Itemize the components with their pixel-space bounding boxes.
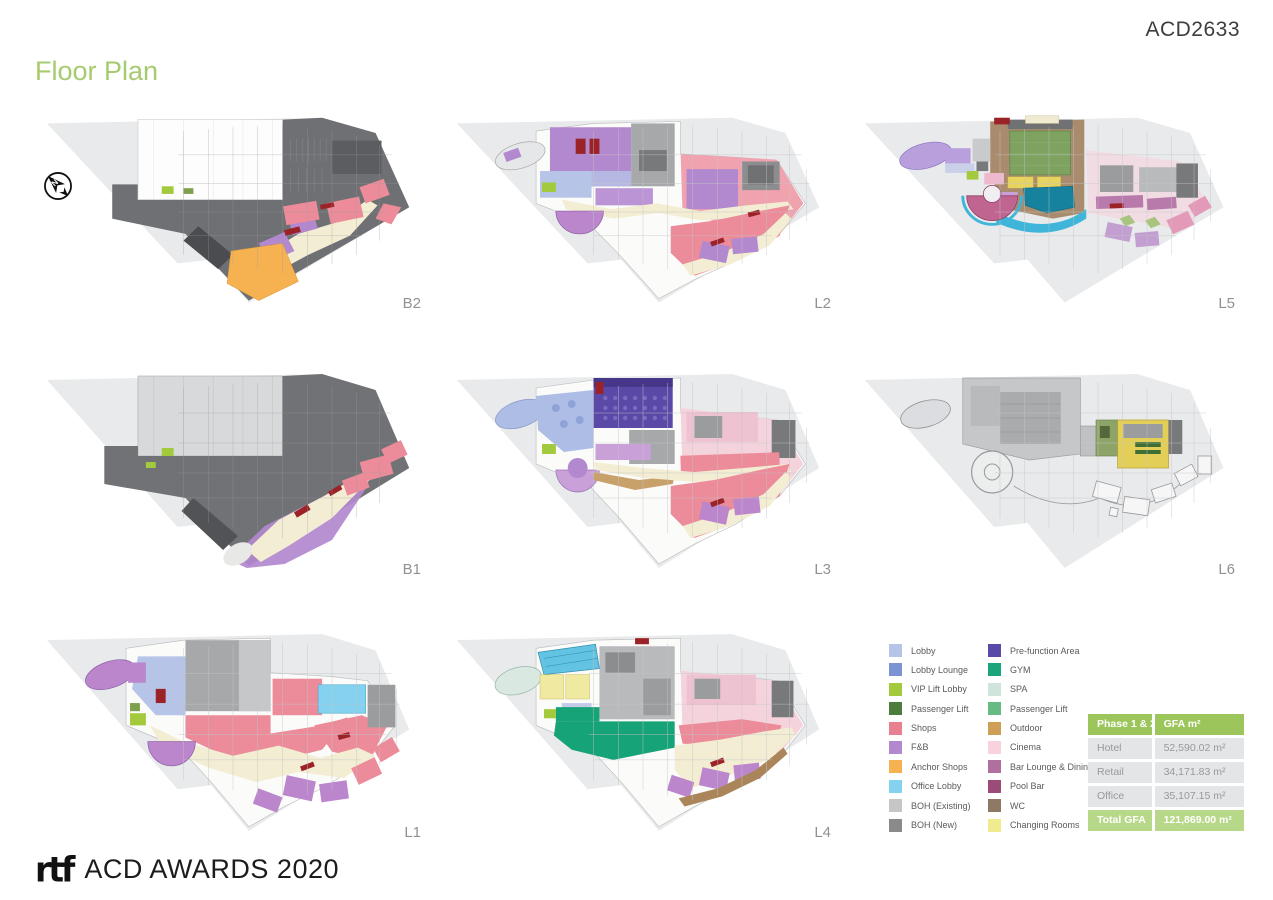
legend-label: Shops [911,723,937,733]
floor-label-l1: L1 [404,824,421,841]
legend-item: Lobby [889,644,988,657]
floor-panel-b1: B1 [35,368,431,578]
gfa-cell: 34,171.83 m² [1155,762,1244,783]
floor-plan-l6-drawing [853,368,1245,578]
legend-label: Cinema [1010,742,1041,752]
legend-label: Outdoor [1010,723,1043,733]
legend-label: Anchor Shops [911,762,968,772]
legend-swatch [988,702,1001,715]
gfa-cell: Office [1088,786,1152,807]
legend-label: Passenger Lift [911,704,969,714]
legend-label: BOH (New) [911,820,957,830]
legend-item: BOH (Existing) [889,799,988,812]
legend-item: Pre-function Area [988,644,1113,657]
legend-swatch [988,741,1001,754]
legend-item: Office Lobby [889,780,988,793]
floor-plan-l4-drawing [445,628,841,841]
legend-label: Office Lobby [911,781,961,791]
floor-plan-l1-drawing [35,628,431,841]
floor-plan-l2-drawing [445,112,841,312]
legend-label: Bar Lounge & Dining [1010,762,1093,772]
legend-swatch [988,663,1001,676]
rtf-logo: rtf [35,849,72,890]
project-code: ACD2633 [1145,18,1240,42]
gfa-row: Retail34,171.83 m² [1088,762,1244,783]
legend-swatch [988,760,1001,773]
legend-item: SPA [988,683,1113,696]
legend-swatch [988,819,1001,832]
legend-swatch [889,644,902,657]
gfa-row: Total GFA121,869.00 m² [1088,810,1244,831]
floor-plan-b2-drawing [35,112,431,312]
legend-item: Lobby Lounge [889,663,988,676]
legend-label: GYM [1010,665,1031,675]
legend-item: Anchor Shops [889,760,988,773]
legend-column-1: LobbyLobby LoungeVIP Lift LobbyPassenger… [889,644,988,838]
legend-label: F&B [911,742,929,752]
legend-label: BOH (Existing) [911,801,971,811]
floor-label-b1: B1 [403,561,421,578]
legend-item: F&B [889,741,988,754]
floor-plan-l5-drawing [853,112,1245,312]
legend-label: Lobby Lounge [911,665,968,675]
legend-swatch [889,780,902,793]
legend-label: VIP Lift Lobby [911,684,967,694]
floor-panel-l3: L3 [445,368,841,578]
legend-swatch [988,799,1001,812]
legend-item: Passenger Lift [889,702,988,715]
legend-swatch [889,741,902,754]
legend-swatch [889,722,902,735]
legend-swatch [889,760,902,773]
gfa-cell: Total GFA [1088,810,1152,831]
north-arrow-icon: N [40,168,76,204]
floor-plan-l3-drawing [445,368,841,578]
legend-swatch [988,683,1001,696]
gfa-table: Phase 1 & 2GFA m²Hotel52,590.02 m²Retail… [1088,714,1244,834]
floor-panel-l6: L6 [853,368,1245,578]
gfa-cell: GFA m² [1155,714,1244,735]
legend-swatch [988,722,1001,735]
legend-item: VIP Lift Lobby [889,683,988,696]
floor-label-l3: L3 [814,561,831,578]
gfa-row: Office35,107.15 m² [1088,786,1244,807]
floor-panel-l4: L4 [445,628,841,841]
gfa-row: Phase 1 & 2GFA m² [1088,714,1244,735]
legend-swatch [889,663,902,676]
gfa-cell: 121,869.00 m² [1155,810,1244,831]
floor-label-l6: L6 [1218,561,1235,578]
legend-swatch [889,702,902,715]
legend-label: Changing Rooms [1010,820,1080,830]
floor-panel-l2: L2 [445,112,841,312]
presentation-board: ACD2633 Floor Plan [0,0,1273,900]
legend-item: Shops [889,722,988,735]
floor-label-l5: L5 [1218,295,1235,312]
legend-swatch [988,780,1001,793]
legend-label: Pool Bar [1010,781,1045,791]
legend-label: Passenger Lift [1010,704,1068,714]
floor-panel-l5: L5 [853,112,1245,312]
gfa-cell: Phase 1 & 2 [1088,714,1152,735]
floor-panel-b2: N B2 [35,112,431,312]
floor-label-l2: L2 [814,295,831,312]
legend-item: GYM [988,663,1113,676]
gfa-cell: Hotel [1088,738,1152,759]
footer: rtf ACD AWARDS 2020 [35,850,339,889]
gfa-cell: 35,107.15 m² [1155,786,1244,807]
gfa-cell: Retail [1088,762,1152,783]
legend-label: Lobby [911,646,936,656]
legend-swatch [988,644,1001,657]
awards-text: ACD AWARDS 2020 [84,854,339,885]
legend-swatch [889,799,902,812]
floor-label-l4: L4 [814,824,831,841]
floor-panel-l1: L1 [35,628,431,841]
legend-label: Pre-function Area [1010,646,1080,656]
legend-label: WC [1010,801,1025,811]
legend-swatch [889,819,902,832]
floor-label-b2: B2 [403,295,421,312]
gfa-cell: 52,590.02 m² [1155,738,1244,759]
floor-plan-b1-drawing [35,368,431,578]
legend: LobbyLobby LoungeVIP Lift LobbyPassenger… [889,644,1113,838]
gfa-row: Hotel52,590.02 m² [1088,738,1244,759]
legend-label: SPA [1010,684,1027,694]
legend-swatch [889,683,902,696]
page-title: Floor Plan [35,56,158,87]
legend-item: BOH (New) [889,819,988,832]
